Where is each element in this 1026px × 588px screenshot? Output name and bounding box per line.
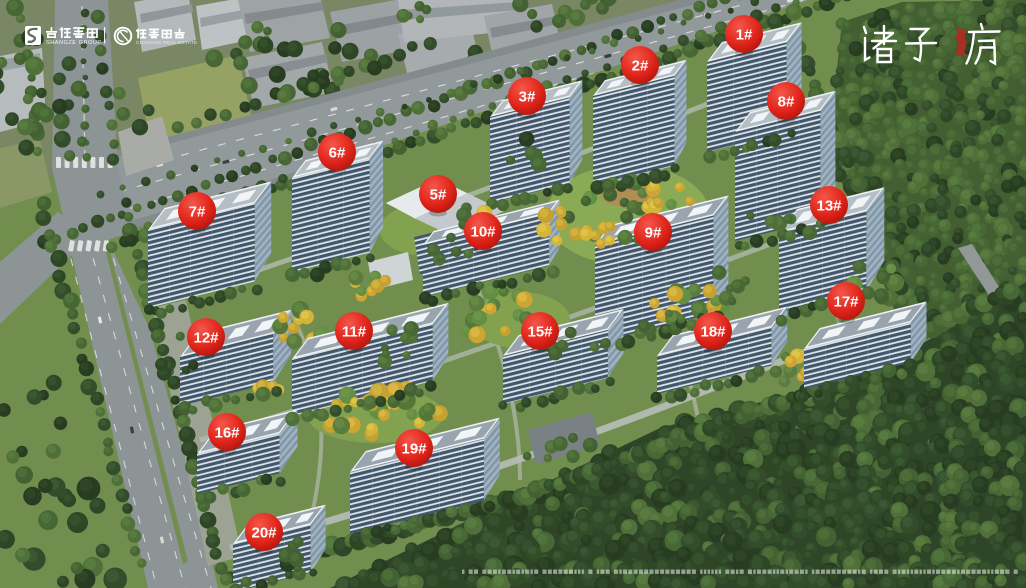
svg-text:11#: 11# <box>342 324 367 341</box>
svg-text:19#: 19# <box>401 441 427 458</box>
svg-text:13#: 13# <box>816 198 842 215</box>
svg-text:2#: 2# <box>632 58 649 75</box>
svg-text:18#: 18# <box>700 324 726 341</box>
svg-text:3#: 3# <box>519 89 536 106</box>
svg-text:15#: 15# <box>527 324 553 341</box>
svg-text:5#: 5# <box>430 187 447 204</box>
svg-text:CHANGGE REAL ESTATE: CHANGGE REAL ESTATE <box>136 40 197 45</box>
svg-text:8#: 8# <box>778 94 795 111</box>
svg-text:12#: 12# <box>193 330 219 347</box>
svg-text:16#: 16# <box>214 425 240 442</box>
svg-text:9#: 9# <box>645 225 662 242</box>
svg-text:6#: 6# <box>329 145 346 162</box>
svg-text:7#: 7# <box>189 204 206 221</box>
svg-text:1#: 1# <box>736 27 753 44</box>
svg-text:SHANGZE GROUP: SHANGZE GROUP <box>46 40 102 46</box>
svg-text:10#: 10# <box>470 224 496 241</box>
svg-text:17#: 17# <box>833 294 859 311</box>
svg-text:20#: 20# <box>251 525 277 542</box>
